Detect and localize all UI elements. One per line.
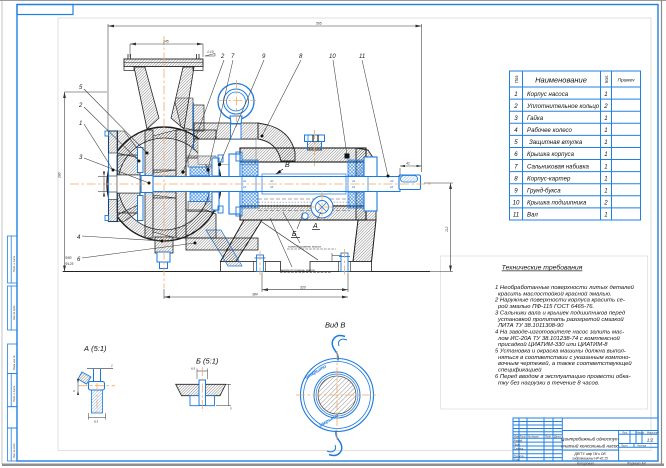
svg-text:Примеч: Примеч <box>618 78 635 84</box>
svg-text:42: 42 <box>406 162 410 166</box>
svg-text:Поз.: Поз. <box>514 75 519 83</box>
svg-text:Вид В: Вид В <box>325 321 345 330</box>
svg-text:Утв.: Утв. <box>514 459 520 462</box>
svg-text:1: 1 <box>604 212 607 219</box>
svg-text:1:10: 1:10 <box>207 50 214 54</box>
svg-text:1:2: 1:2 <box>647 438 654 443</box>
svg-text:Рабочее колесо: Рабочее колесо <box>527 127 573 134</box>
svg-text:1 Необработанные поверхности л: 1 Необработанные поверхности литых детал… <box>495 284 635 291</box>
svg-text:5 Установка и окраска машины д: 5 Установка и окраска машины должна выпо… <box>495 349 626 355</box>
svg-text:Наименование: Наименование <box>535 76 587 85</box>
svg-text:Корпус насоса: Корпус насоса <box>527 91 569 98</box>
svg-text:Гайка: Гайка <box>527 115 544 122</box>
svg-text:Б: Б <box>292 231 297 238</box>
svg-text:1: 1 <box>79 121 82 127</box>
svg-text:6,5: 6,5 <box>191 367 196 371</box>
svg-text:Лист: Лист <box>519 436 526 439</box>
svg-text:Пров.: Пров. <box>514 444 521 447</box>
svg-text:Масштаб: Масштаб <box>647 432 659 435</box>
svg-text:Дата: Дата <box>553 436 561 439</box>
svg-text:4 На заводе-изготовителе насос: 4 На заводе-изготовителе насос залить ма… <box>495 330 624 336</box>
svg-text:565: 565 <box>316 22 322 26</box>
svg-text:Масса: Масса <box>637 432 645 435</box>
svg-text:Корпус-картер: Корпус-картер <box>527 175 571 182</box>
svg-text:3 Сальники вала и крышек подши: 3 Сальники вала и крышек подшипников пер… <box>495 310 626 316</box>
svg-text:Лист: Лист <box>620 445 627 448</box>
svg-text:1: 1 <box>604 151 607 158</box>
svg-text:спецификацией: спецификацией <box>498 367 542 374</box>
svg-text:Инв № подл: Инв № подл <box>12 443 16 458</box>
svg-text:1: 1 <box>604 139 607 146</box>
svg-text:2: 2 <box>78 103 83 109</box>
svg-text:112: 112 <box>445 226 449 232</box>
svg-text:384: 384 <box>252 293 258 297</box>
svg-text:Формат А4: Формат А4 <box>627 461 646 465</box>
svg-text:2 Наружные поверхности корпуса: 2 Наружные поверхности корпуса красить с… <box>494 298 625 304</box>
svg-text:вочным чертежей, а также соотв: вочным чертежей, а также соответствующей <box>498 360 632 367</box>
svg-text:11: 11 <box>513 212 519 219</box>
svg-text:k6: k6 <box>352 185 356 189</box>
svg-text:145: 145 <box>163 40 169 44</box>
svg-text:320: 320 <box>300 285 306 289</box>
svg-text:Разраб.: Разраб. <box>514 440 523 443</box>
svg-text:h6: h6 <box>270 185 274 189</box>
svg-text:установкой пропитать разогрето: установкой пропитать разогретой смазкой <box>497 316 624 323</box>
svg-text:1: 1 <box>604 115 607 122</box>
svg-text:ЛИТА ТУ 38.1011308-90: ЛИТА ТУ 38.1011308-90 <box>497 323 564 329</box>
svg-text:В: В <box>285 162 290 169</box>
svg-text:1: 1 <box>604 188 607 195</box>
svg-text:А (5:1): А (5:1) <box>83 344 107 353</box>
svg-text:Уплотнительное кольцо: Уплотнительное кольцо <box>526 103 600 110</box>
svg-text:Вал: Вал <box>527 212 538 219</box>
svg-text:11: 11 <box>359 54 365 60</box>
svg-text:лом ИС-20А ТУ 38.101238-74 с к: лом ИС-20А ТУ 38.101238-74 с комплексной <box>497 335 621 342</box>
svg-text:1: 1 <box>604 163 607 170</box>
svg-text:10: 10 <box>513 200 520 207</box>
svg-text:Центробежный одноступ-: Центробежный одноступ- <box>561 436 619 442</box>
svg-text:k6: k6 <box>243 185 247 189</box>
svg-text:d3: d3 <box>390 179 394 183</box>
svg-text:Ф80: Ф80 <box>65 256 72 260</box>
svg-text:тку без нагрузки в течение 8 ч: тку без нагрузки в течение 8 часов. <box>498 380 600 386</box>
svg-text:рой эмалью ПФ-115 ГОСТ 6465-76: рой эмалью ПФ-115 ГОСТ 6465-76. <box>497 303 594 310</box>
svg-text:Крышка подшипника: Крышка подшипника <box>527 200 587 207</box>
svg-text:Подп.: Подп. <box>545 436 552 439</box>
svg-text:2: 2 <box>603 200 608 207</box>
svg-text:Инв № дубл: Инв № дубл <box>12 305 16 320</box>
svg-text:d2: d2 <box>270 179 274 183</box>
svg-text:Защитная втулка: Защитная втулка <box>529 139 583 146</box>
svg-text:гидромашины НР-42.15: гидромашины НР-42.15 <box>572 456 608 460</box>
svg-text:2: 2 <box>513 103 518 110</box>
svg-text:Б (5:1): Б (5:1) <box>196 357 219 366</box>
svg-text:Подп. и дата: Подп. и дата <box>12 255 16 272</box>
svg-text:10: 10 <box>329 54 336 60</box>
svg-text:280: 280 <box>58 172 62 179</box>
svg-text:1: 1 <box>604 127 607 134</box>
svg-text:6 Перед вводом в эксплуатацию: 6 Перед вводом в эксплуатацию провести о… <box>495 374 631 380</box>
svg-text:№ докум.: № докум. <box>528 436 539 439</box>
svg-text:d1: d1 <box>352 179 356 183</box>
svg-text:Кол.: Кол. <box>604 75 609 83</box>
svg-text:А: А <box>312 223 318 230</box>
svg-text:Взам инв №: Взам инв № <box>12 355 16 370</box>
svg-text:Грунд-букса: Грунд-букса <box>527 188 561 195</box>
svg-text:k6: k6 <box>390 185 394 189</box>
svg-text:Крышка корпуса: Крышка корпуса <box>527 151 575 158</box>
svg-text:нижний уровень масла: нижний уровень масла <box>288 245 321 249</box>
svg-text:d1: d1 <box>243 179 247 183</box>
svg-text:присадкой ЦИАТИМ-330 или ЦИАТИ: присадкой ЦИАТИМ-330 или ЦИАТИМ-8 <box>498 341 608 348</box>
svg-text:Ф125: Ф125 <box>65 262 73 266</box>
svg-text:Изм: Изм <box>514 436 519 439</box>
svg-text:Подп. и дата: Подп. и дата <box>12 385 16 402</box>
svg-text:8,5: 8,5 <box>94 420 99 424</box>
svg-text:верхний уровень масла: верхний уровень масла <box>281 268 315 272</box>
svg-text:1: 1 <box>514 91 517 98</box>
svg-text:2: 2 <box>220 54 225 60</box>
svg-text:нчатый консольный насос: нчатый консольный насос <box>561 443 619 449</box>
svg-text:2: 2 <box>603 103 608 110</box>
svg-text:Листов: Листов <box>636 445 647 448</box>
svg-text:Копировал: Копировал <box>577 461 594 465</box>
svg-text:красить маслостойкой красной э: красить маслостойкой красной эмалью. <box>498 290 612 297</box>
svg-text:Лит.: Лит. <box>621 432 628 435</box>
svg-text:Сальниковая набивка: Сальниковая набивка <box>527 163 589 170</box>
svg-text:няться в соответствии с указан: няться в соответствии с указанным компон… <box>498 355 630 361</box>
svg-text:1: 1 <box>604 91 607 98</box>
svg-text:2: 2 <box>110 364 113 368</box>
svg-text:Т.контр.: Т.контр. <box>514 447 524 450</box>
svg-text:Технические требования: Технические требования <box>502 264 583 272</box>
svg-text:1: 1 <box>604 175 607 182</box>
